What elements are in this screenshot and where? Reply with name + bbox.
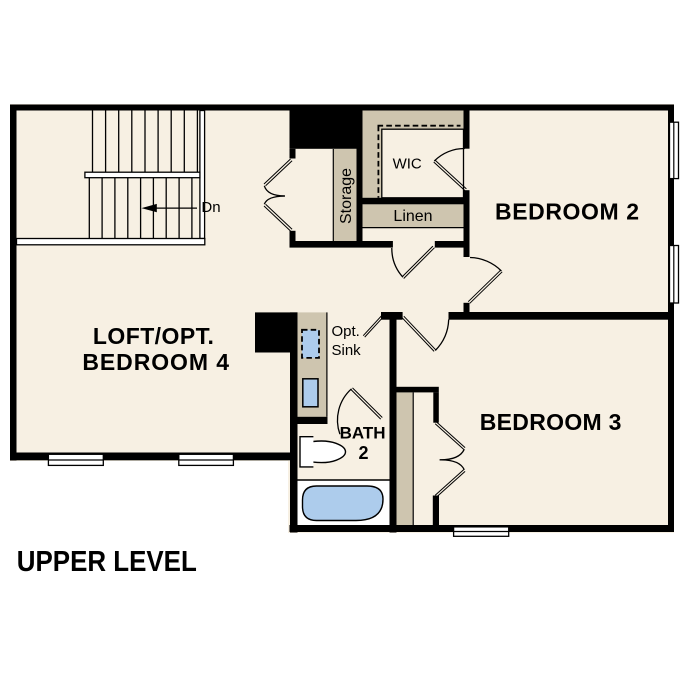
svg-text:Sink: Sink — [332, 342, 362, 359]
svg-text:BEDROOM 3: BEDROOM 3 — [480, 409, 622, 435]
svg-text:BEDROOM 4: BEDROOM 4 — [82, 349, 229, 375]
svg-text:UPPER LEVEL: UPPER LEVEL — [17, 546, 197, 578]
svg-text:BATH: BATH — [340, 423, 386, 442]
svg-text:BEDROOM 2: BEDROOM 2 — [495, 198, 639, 224]
svg-text:LOFT/OPT.: LOFT/OPT. — [93, 323, 214, 349]
svg-text:Linen: Linen — [393, 208, 432, 225]
svg-text:WIC: WIC — [393, 156, 422, 173]
svg-text:2: 2 — [358, 443, 368, 463]
svg-text:Storage: Storage — [338, 168, 355, 224]
svg-text:Opt.: Opt. — [332, 323, 360, 340]
svg-text:Dn: Dn — [201, 199, 220, 216]
